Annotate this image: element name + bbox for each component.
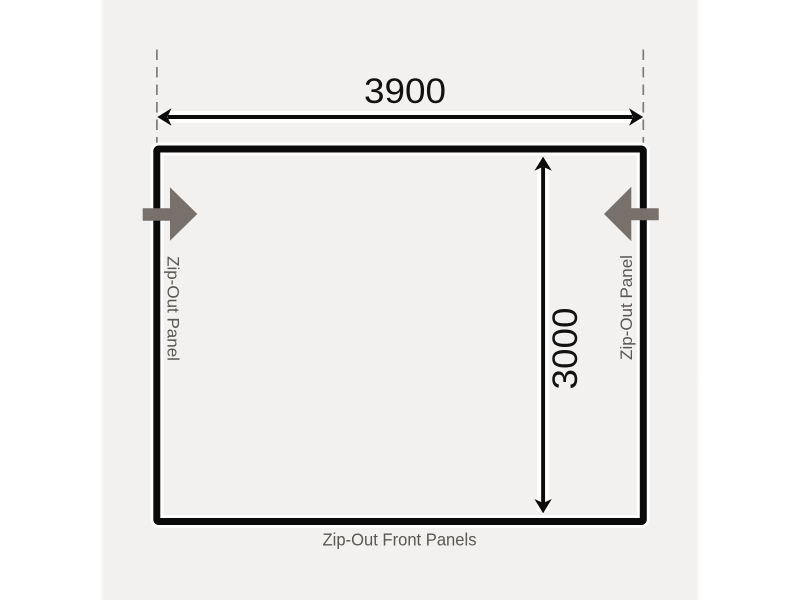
svg-text:3900: 3900 [364,72,446,111]
svg-text:Zip-Out Panel: Zip-Out Panel [163,256,182,361]
svg-text:3000: 3000 [546,308,585,390]
svg-text:Zip-Out Panel: Zip-Out Panel [617,255,636,360]
svg-text:Zip-Out Front Panels: Zip-Out Front Panels [323,530,477,550]
